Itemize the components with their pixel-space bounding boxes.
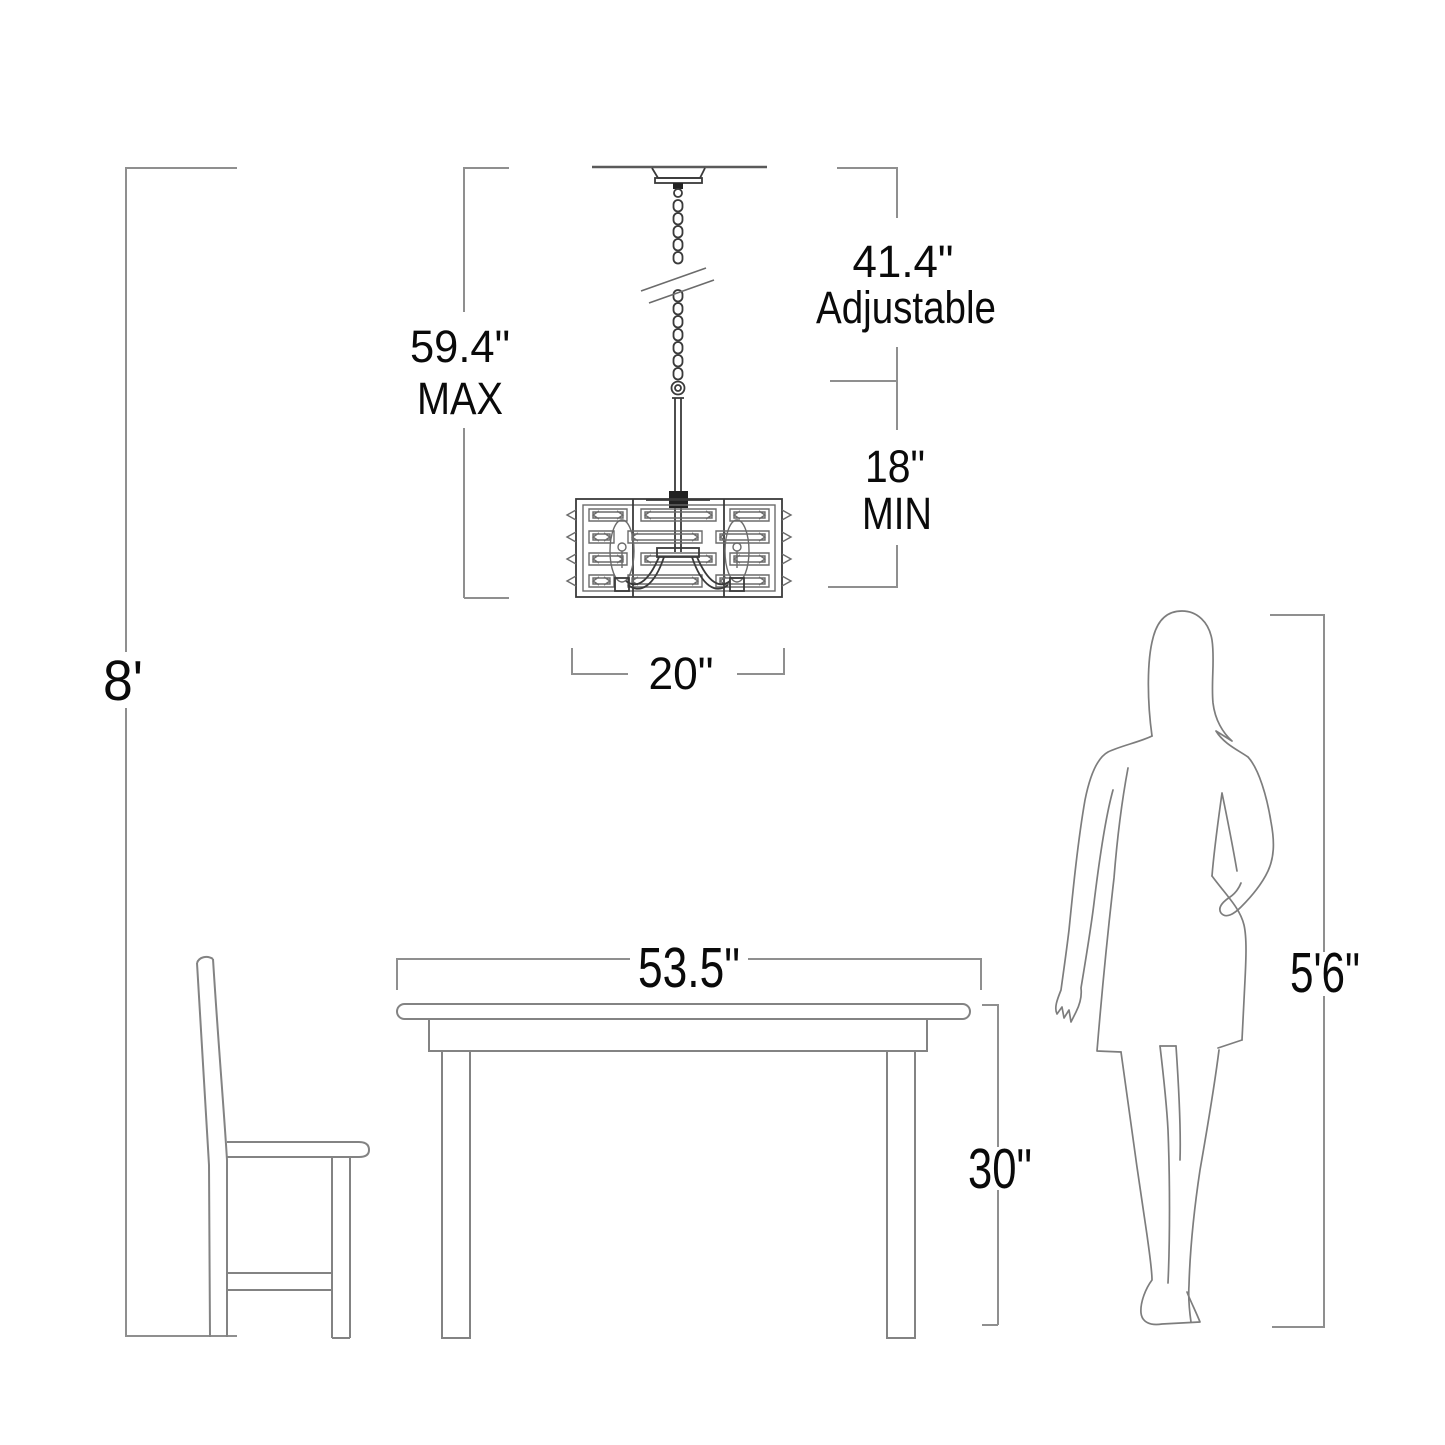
label-table-width: 53.5" (638, 936, 740, 1000)
table-apron (429, 1019, 927, 1051)
chandelier-chain (674, 200, 683, 380)
table-leg-right (887, 1051, 915, 1338)
label-max-qualifier: MAX (417, 373, 503, 424)
label-table-height: 30" (968, 1137, 1032, 1201)
chair-stretcher (227, 1273, 332, 1290)
label-adjustable-qualifier: Adjustable (816, 282, 996, 333)
dimension-diagram: 8' 59.4" MAX 41.4" Adjustable 18" MIN 20… (0, 0, 1445, 1445)
label-min-qualifier: MIN (862, 488, 932, 539)
table-drawing (397, 1004, 970, 1338)
table-leg-left (442, 1051, 470, 1338)
label-fixture-width: 20" (649, 648, 714, 699)
label-max-height: 59.4" (410, 321, 510, 372)
chain-break-icon (641, 268, 714, 303)
dimension-labels: 8' 59.4" MAX 41.4" Adjustable 18" MIN 20… (103, 236, 1360, 1201)
label-person-height: 5'6" (1290, 941, 1360, 1005)
chandelier-stem (646, 382, 710, 553)
chair-front-leg (332, 1157, 350, 1338)
dimension-lines (126, 168, 1324, 1336)
table-top (397, 1004, 970, 1019)
dim-ceiling-height-line (126, 168, 237, 1336)
chair-drawing (197, 957, 369, 1338)
chandelier-canopy (652, 168, 705, 197)
chandelier-drawing (567, 168, 791, 597)
dim-min-line (828, 545, 897, 587)
person-silhouette (1056, 611, 1274, 1325)
label-ceiling-height: 8' (103, 649, 143, 713)
label-adjustable-length: 41.4" (853, 236, 954, 287)
chair-seat (227, 1142, 369, 1157)
label-min-length: 18" (865, 441, 925, 492)
diagram-svg: 8' 59.4" MAX 41.4" Adjustable 18" MIN 20… (0, 0, 1445, 1445)
